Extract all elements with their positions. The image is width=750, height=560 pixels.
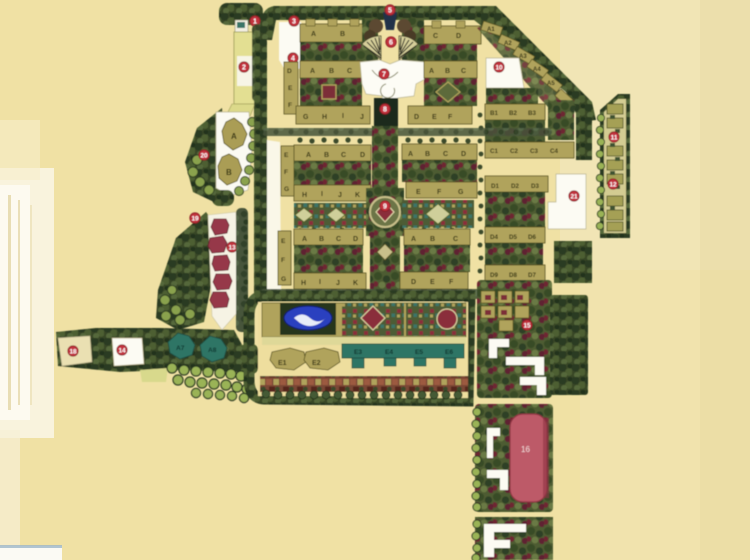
svg-text:C1: C1 xyxy=(490,148,498,155)
svg-text:D1: D1 xyxy=(491,183,499,190)
svg-text:21: 21 xyxy=(570,193,578,200)
svg-text:C: C xyxy=(347,68,352,75)
svg-text:C2: C2 xyxy=(510,148,518,155)
svg-text:G: G xyxy=(284,186,289,193)
svg-text:D: D xyxy=(414,114,419,121)
svg-text:K: K xyxy=(355,192,360,199)
svg-text:D9: D9 xyxy=(490,272,498,279)
svg-text:E4: E4 xyxy=(385,349,393,356)
svg-text:H: H xyxy=(322,114,327,121)
svg-text:B: B xyxy=(324,152,329,159)
svg-text:I: I xyxy=(319,279,321,286)
svg-text:12: 12 xyxy=(609,181,617,188)
svg-text:D: D xyxy=(353,236,358,243)
svg-text:A2: A2 xyxy=(504,41,512,47)
svg-text:H: H xyxy=(302,192,307,199)
svg-text:E6: E6 xyxy=(445,349,453,356)
svg-text:15: 15 xyxy=(523,322,531,329)
svg-text:E: E xyxy=(288,85,293,92)
svg-text:E1: E1 xyxy=(278,360,287,367)
svg-text:B: B xyxy=(425,151,430,158)
svg-text:B: B xyxy=(445,68,450,75)
svg-text:D6: D6 xyxy=(528,234,536,241)
svg-text:A: A xyxy=(311,31,316,38)
svg-text:J: J xyxy=(360,114,364,121)
svg-text:D4: D4 xyxy=(490,234,498,241)
svg-text:4: 4 xyxy=(291,55,295,62)
svg-text:C: C xyxy=(461,68,466,75)
svg-text:C: C xyxy=(336,236,341,243)
svg-text:19: 19 xyxy=(191,215,199,222)
svg-text:A: A xyxy=(306,152,311,159)
svg-text:9: 9 xyxy=(383,203,387,210)
svg-text:G: G xyxy=(303,114,309,121)
svg-text:A: A xyxy=(408,151,413,158)
svg-text:E5: E5 xyxy=(415,349,423,356)
svg-text:J: J xyxy=(338,192,342,199)
svg-text:D: D xyxy=(411,279,416,286)
svg-text:B2: B2 xyxy=(509,110,517,117)
svg-text:A: A xyxy=(231,132,237,141)
svg-text:D: D xyxy=(360,152,365,159)
svg-text:C: C xyxy=(453,236,458,243)
svg-text:F: F xyxy=(437,189,442,196)
svg-text:F: F xyxy=(281,257,285,264)
svg-text:B: B xyxy=(340,31,345,38)
svg-text:A: A xyxy=(310,68,315,75)
svg-text:J: J xyxy=(336,280,340,287)
svg-text:C3: C3 xyxy=(530,148,538,155)
svg-text:B: B xyxy=(430,236,435,243)
svg-text:7: 7 xyxy=(382,71,386,78)
svg-text:B: B xyxy=(319,236,324,243)
svg-text:13: 13 xyxy=(228,244,236,251)
svg-text:E2: E2 xyxy=(312,360,321,367)
svg-text:F: F xyxy=(449,279,454,286)
svg-text:F: F xyxy=(448,114,453,121)
svg-text:D: D xyxy=(287,68,292,75)
svg-text:E: E xyxy=(284,152,289,159)
svg-text:C4: C4 xyxy=(550,148,558,155)
svg-text:C: C xyxy=(341,152,346,159)
svg-text:A: A xyxy=(429,68,434,75)
svg-text:I: I xyxy=(321,191,323,198)
svg-text:K: K xyxy=(353,280,358,287)
svg-text:2: 2 xyxy=(242,64,246,71)
svg-text:B: B xyxy=(226,168,232,177)
svg-text:B: B xyxy=(329,68,334,75)
svg-text:D: D xyxy=(456,33,461,40)
svg-text:E: E xyxy=(416,189,421,196)
svg-text:8: 8 xyxy=(383,106,387,113)
svg-text:5: 5 xyxy=(388,7,392,14)
svg-text:20: 20 xyxy=(200,152,208,159)
svg-text:E: E xyxy=(432,114,437,121)
svg-text:G: G xyxy=(458,189,464,196)
svg-text:11: 11 xyxy=(611,134,618,141)
svg-text:C: C xyxy=(433,33,438,40)
svg-text:16: 16 xyxy=(521,445,530,454)
svg-text:3: 3 xyxy=(292,18,296,25)
svg-text:10: 10 xyxy=(495,64,503,71)
svg-text:18: 18 xyxy=(69,348,77,355)
svg-text:A7: A7 xyxy=(176,345,185,352)
svg-text:E: E xyxy=(281,238,286,245)
svg-text:D5: D5 xyxy=(509,234,517,241)
svg-text:F: F xyxy=(288,102,292,109)
svg-text:B1: B1 xyxy=(490,110,498,117)
svg-text:H: H xyxy=(301,280,306,287)
svg-text:D7: D7 xyxy=(528,272,536,279)
svg-text:A8: A8 xyxy=(208,347,217,354)
svg-text:I: I xyxy=(342,113,344,120)
svg-text:D2: D2 xyxy=(511,183,519,190)
svg-text:A5: A5 xyxy=(547,81,555,87)
svg-text:D: D xyxy=(461,151,466,158)
svg-text:A3: A3 xyxy=(519,54,527,60)
svg-text:D3: D3 xyxy=(531,183,539,190)
svg-text:6: 6 xyxy=(389,39,393,46)
svg-text:F: F xyxy=(284,169,288,176)
svg-text:14: 14 xyxy=(118,347,126,354)
svg-text:A: A xyxy=(302,236,307,243)
svg-text:E: E xyxy=(430,279,435,286)
svg-text:C: C xyxy=(443,151,448,158)
svg-text:G: G xyxy=(281,276,286,283)
svg-text:A1: A1 xyxy=(487,27,495,33)
svg-text:B3: B3 xyxy=(528,110,536,117)
svg-text:D8: D8 xyxy=(509,272,517,279)
svg-text:A: A xyxy=(411,236,416,243)
svg-text:A4: A4 xyxy=(533,67,541,73)
svg-text:E3: E3 xyxy=(354,349,362,356)
